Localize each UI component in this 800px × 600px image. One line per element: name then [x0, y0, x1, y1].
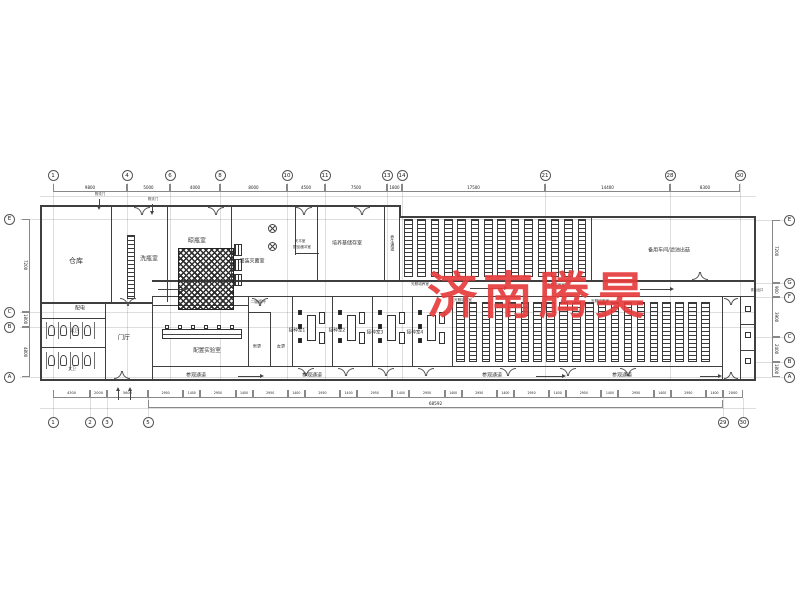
- dim-label: 1400: [340, 390, 357, 398]
- flow-arrow: [152, 204, 153, 211]
- clean-bench: [439, 332, 445, 344]
- grid-bubble: 13: [382, 170, 393, 181]
- dim-label: 2400: [772, 337, 780, 362]
- work-table: [347, 315, 356, 341]
- dim-label: 1800: [22, 312, 30, 327]
- dim-line: [40, 408, 756, 409]
- clean-bench: [359, 332, 365, 344]
- room-label: 接种室2: [329, 328, 346, 333]
- door-icon: [700, 272, 708, 280]
- dim-label: 8000: [220, 184, 287, 192]
- autoclave-icon: [234, 274, 242, 286]
- grid-bubble: 1: [48, 417, 59, 428]
- flow-arrow: [536, 376, 562, 377]
- dim-label: 5000: [127, 184, 170, 192]
- stall-wall: [94, 322, 95, 339]
- grid-axis-line: [20, 219, 754, 220]
- dim-label: 2950: [148, 390, 183, 398]
- room-label: 男卫: [70, 329, 78, 333]
- grid-bubble: 3: [102, 417, 113, 428]
- lab-stool: [230, 325, 234, 329]
- clean-bench: [399, 332, 405, 344]
- dim-label: 8300: [670, 184, 740, 192]
- dim-label: 1400: [288, 390, 305, 398]
- lab-stool: [217, 325, 221, 329]
- lab-stool: [178, 325, 182, 329]
- room-label: 女更: [277, 345, 285, 350]
- grid-bubble: B: [784, 357, 795, 368]
- room-label: 物流门: [95, 193, 105, 197]
- grid-bubble: C: [784, 332, 795, 343]
- stall-wall: [58, 352, 59, 369]
- room-label: 配置实验室: [193, 348, 221, 354]
- door-icon: [724, 372, 731, 379]
- grid-bubble: 6: [165, 170, 176, 181]
- dim-label: 7500: [325, 184, 387, 192]
- dim-label: 1800: [772, 362, 780, 377]
- lab-stool: [165, 325, 169, 329]
- grid-bubble: 28: [665, 170, 676, 181]
- grid-bubble: 5: [143, 417, 154, 428]
- stall-wall: [94, 352, 95, 369]
- dim-label: 17500: [402, 184, 545, 192]
- service-equip: [745, 332, 751, 338]
- room-label: 培养基储存室: [332, 241, 362, 247]
- dim-label: 1400: [392, 390, 409, 398]
- clean-bench: [399, 312, 405, 324]
- wall: [111, 207, 112, 302]
- grid-bubble: 30: [738, 417, 749, 428]
- toilet-icon: [48, 325, 55, 336]
- work-table: [387, 315, 396, 341]
- wall: [740, 296, 741, 381]
- dim-label: 2950: [253, 390, 288, 398]
- grow-rack: [404, 219, 413, 277]
- room-label: 物流门: [148, 198, 158, 202]
- dim-label: 2950: [305, 390, 340, 398]
- wall: [40, 205, 42, 381]
- flow-arrow: [718, 374, 722, 378]
- grid-bubble: 2: [85, 417, 96, 428]
- room-label: 接种室3: [367, 330, 384, 335]
- grid-bubble: 4: [122, 170, 133, 181]
- dim-label: 3900: [772, 297, 780, 337]
- door-icon: [731, 372, 738, 379]
- dim-label: 1400: [236, 390, 253, 398]
- dim-label: 1400: [549, 390, 566, 398]
- door-icon: [731, 298, 738, 305]
- stall-wall: [46, 352, 47, 369]
- bench-icon: [378, 310, 382, 315]
- hatch-block: [178, 248, 234, 310]
- grow-rack: [417, 219, 426, 277]
- grid-bubble: 1: [48, 170, 59, 181]
- room-label: 晾瓶室: [188, 239, 206, 246]
- dim-label: 7200: [22, 219, 30, 312]
- grid-bubble: 8: [215, 170, 226, 181]
- door-icon: [692, 272, 700, 280]
- flow-arrow: [118, 391, 119, 400]
- grid-bubble: 29: [718, 417, 729, 428]
- wall: [399, 217, 400, 280]
- flow-arrow: [128, 387, 132, 391]
- room-label: 灌装灭菌室: [239, 259, 264, 265]
- flow-arrow: [670, 287, 674, 291]
- door-icon: [378, 368, 386, 376]
- grid-bubble: 10: [282, 170, 293, 181]
- room-label: 洗瓶室: [140, 257, 158, 264]
- wall: [295, 253, 319, 254]
- door-icon: [114, 371, 122, 379]
- watermark: 济南腾昊: [427, 256, 651, 328]
- flow-arrow: [562, 374, 566, 378]
- dim-label: 4800: [22, 327, 30, 377]
- grid-bubble: B: [4, 322, 15, 333]
- door-icon: [354, 207, 362, 215]
- flow-arrow: [260, 374, 264, 378]
- dim-label: 2950: [357, 390, 392, 398]
- wall: [105, 302, 106, 381]
- dim-label: 2950: [409, 390, 444, 398]
- door-icon: [724, 298, 731, 305]
- grid-bubble: G: [784, 278, 795, 289]
- flow-arrow: [99, 199, 100, 206]
- wall: [740, 350, 754, 351]
- flow-arrow: [150, 211, 154, 215]
- door-icon: [304, 207, 312, 215]
- dim-label: 4500: [287, 184, 325, 192]
- toilet-icon: [84, 325, 91, 336]
- dim-label: 1400: [183, 390, 200, 398]
- bench-icon: [298, 338, 302, 343]
- wall: [722, 296, 723, 381]
- door-icon: [346, 368, 354, 376]
- door-icon: [418, 368, 426, 376]
- wall: [248, 312, 270, 313]
- toilet-icon: [60, 325, 67, 336]
- fan-icon: [268, 242, 277, 251]
- dim-label: 1400: [654, 390, 671, 398]
- door-icon: [568, 368, 576, 376]
- wall: [167, 207, 168, 302]
- wall: [42, 318, 105, 319]
- floorplan-canvas: 济南腾昊 14681011131421283012352930ECBAEGFCB…: [0, 0, 800, 600]
- lab-bench: [162, 329, 242, 339]
- fan-icon: [268, 224, 277, 233]
- wall: [270, 312, 271, 366]
- dim-label: 4000: [170, 184, 220, 192]
- bench-icon: [338, 310, 342, 315]
- door-icon: [134, 207, 142, 215]
- grid-bubble: E: [784, 215, 795, 226]
- wall: [152, 366, 722, 367]
- toilet-icon: [72, 355, 79, 366]
- door-icon: [338, 368, 346, 376]
- door-icon: [128, 298, 136, 306]
- grid-bubble: F: [784, 292, 795, 303]
- grow-rack: [701, 302, 710, 362]
- grid-bubble: E: [4, 214, 15, 225]
- room-label: 接种室1: [289, 328, 306, 333]
- flow-arrow: [130, 391, 131, 400]
- toilet-icon: [48, 355, 55, 366]
- room-label: 女卫: [68, 367, 76, 371]
- dim-label: 1400: [497, 390, 514, 398]
- dim-label: 2000: [723, 390, 743, 398]
- room-label: 配品缓冲室: [293, 246, 311, 250]
- grid-bubble: A: [784, 372, 795, 383]
- grow-rack: [662, 302, 671, 362]
- grid-bubble: 30: [735, 170, 746, 181]
- bench-icon: [338, 338, 342, 343]
- grid-bubble: 21: [540, 170, 551, 181]
- wall: [248, 296, 249, 366]
- dim-label: 9800: [53, 184, 127, 192]
- room-label: 仓库: [69, 258, 83, 266]
- wall: [384, 207, 385, 280]
- flow-arrow: [97, 206, 101, 210]
- room-label: 二级缓冲: [250, 300, 265, 304]
- dim-label: 2950: [618, 390, 653, 398]
- clean-bench: [319, 312, 325, 324]
- dim-label: 5600: [107, 390, 148, 398]
- door-icon: [508, 368, 516, 376]
- wall: [40, 379, 756, 381]
- stall-wall: [46, 322, 47, 339]
- bench-icon: [378, 338, 382, 343]
- dim-label: 2000: [90, 390, 107, 398]
- grid-bubble: A: [4, 372, 15, 383]
- door-icon: [296, 207, 304, 215]
- dim-label: 1800: [387, 184, 402, 192]
- bench-icon: [378, 324, 382, 329]
- dim-label: 1400: [445, 390, 462, 398]
- room-label: 参观通道: [612, 373, 632, 379]
- door-icon: [216, 207, 224, 215]
- dim-label: 900: [772, 283, 780, 297]
- grid-bubble: 11: [320, 170, 331, 181]
- lab-stool: [191, 325, 195, 329]
- service-equip: [745, 306, 751, 312]
- stall-wall: [82, 322, 83, 339]
- room-label: 配电: [75, 306, 85, 312]
- bench-icon: [298, 310, 302, 315]
- clean-bench: [359, 312, 365, 324]
- room-label: 接种室4: [407, 330, 424, 335]
- service-equip: [745, 358, 751, 364]
- bench-icon: [418, 338, 422, 343]
- grid-axis-line: [20, 377, 754, 378]
- wall: [754, 216, 756, 381]
- room-label: 参观通道: [302, 373, 322, 379]
- bench-icon: [418, 324, 422, 329]
- grow-rack: [675, 302, 684, 362]
- door-icon: [362, 207, 370, 215]
- wall: [42, 347, 105, 348]
- autoclave-icon: [234, 244, 242, 256]
- door-icon: [426, 368, 434, 376]
- dim-label: 2950: [462, 390, 497, 398]
- room-label: 紧急出口: [751, 289, 764, 293]
- door-icon: [122, 371, 130, 379]
- flow-arrow: [184, 287, 188, 291]
- flow-arrow: [116, 387, 120, 391]
- dim-label: 4300: [53, 390, 90, 398]
- dim-label: 7200: [772, 220, 780, 283]
- dim-total-label: 68592: [148, 400, 723, 408]
- room-label: 男更: [253, 345, 261, 350]
- work-table: [307, 315, 316, 341]
- room-label: 参观通道: [186, 373, 206, 379]
- room-label: 养生通道: [390, 235, 394, 251]
- door-icon: [142, 207, 150, 215]
- dim-label: 1400: [706, 390, 723, 398]
- dim-label: 2950: [566, 390, 601, 398]
- door-icon: [208, 207, 216, 215]
- stall-wall: [58, 322, 59, 339]
- grid-bubble: 14: [397, 170, 408, 181]
- grid-leader-line: [756, 377, 784, 378]
- toilet-icon: [60, 355, 67, 366]
- room-label: 备用车间/滤油出菇: [648, 248, 690, 254]
- ladder-rack: [127, 235, 135, 299]
- clean-bench: [319, 332, 325, 344]
- grid-axis-line: [53, 183, 54, 379]
- dim-label: 2950: [200, 390, 235, 398]
- toilet-icon: [84, 355, 91, 366]
- wall: [740, 324, 754, 325]
- flow-arrow: [158, 289, 184, 290]
- wall: [317, 207, 318, 280]
- grow-rack: [688, 302, 697, 362]
- stall-wall: [82, 352, 83, 369]
- room-label: 天平室: [295, 240, 306, 244]
- flow-arrow: [238, 376, 260, 377]
- flow-arrow: [700, 376, 718, 377]
- room-label: 门厅: [118, 336, 130, 343]
- bench-icon: [418, 310, 422, 315]
- dim-label: 2950: [514, 390, 549, 398]
- dim-label: 2950: [671, 390, 706, 398]
- dim-label: 1400: [601, 390, 618, 398]
- grid-bubble: C: [4, 307, 15, 318]
- dim-label: 14400: [545, 184, 670, 192]
- wall: [152, 296, 153, 381]
- room-label: 参观通道: [482, 373, 502, 379]
- lab-stool: [204, 325, 208, 329]
